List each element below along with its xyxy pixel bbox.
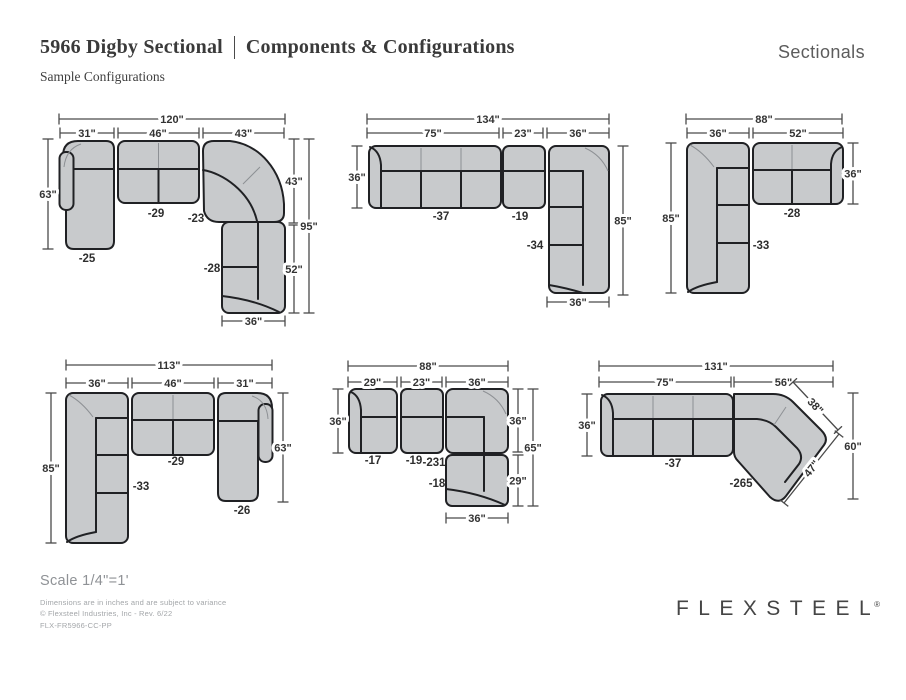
dim-label: 85" xyxy=(614,215,631,227)
piece--26 xyxy=(218,393,273,501)
piece--33 xyxy=(687,143,749,293)
piece-label: -29 xyxy=(168,456,185,468)
dim-label: 43" xyxy=(285,176,302,188)
piece-label: -29 xyxy=(148,208,165,220)
piece--28 xyxy=(222,222,285,313)
dim-label: 31" xyxy=(78,128,95,140)
copyright-note: © Flexsteel Industries, Inc - Rev. 6/22 xyxy=(40,608,226,619)
dim-label: 63" xyxy=(274,442,291,454)
dim-label: 36" xyxy=(578,420,595,432)
dim-label: 56" xyxy=(775,377,792,389)
piece-label: -34 xyxy=(527,240,544,252)
piece-label: -265 xyxy=(729,478,753,490)
registered-mark: ® xyxy=(874,600,880,609)
piece--37 xyxy=(601,394,733,456)
dim-label: 36" xyxy=(245,316,262,328)
piece-label: -28 xyxy=(204,263,221,275)
diagram-config-4: 113" 36" 46" 31" 85" 63" -33 -29 -26 xyxy=(42,360,291,543)
dim-label: 29" xyxy=(509,475,526,487)
dim-label: 36" xyxy=(88,378,105,390)
diagram-config-1: 120" 31" 46" 43" 63" 43" 52" 95" 36" -25… xyxy=(39,114,317,328)
dim-label: 85" xyxy=(662,213,679,225)
dim-label: 36" xyxy=(569,128,586,140)
piece--231 xyxy=(446,389,508,453)
dim-label: 85" xyxy=(42,463,59,475)
logo-text: FLEXSTEEL xyxy=(676,597,880,620)
piece-label: -18 xyxy=(429,478,446,490)
piece-label: -26 xyxy=(234,505,251,517)
document-code: FLX-FR5966-CC-PP xyxy=(40,620,226,631)
dim-label: 52" xyxy=(789,128,806,140)
diagram-config-5: 88" 29" 23" 36" 36" 36" 29" 65" 36" -17 … xyxy=(329,361,541,525)
dim-label: 65" xyxy=(524,442,541,454)
dim-label: 75" xyxy=(656,377,673,389)
piece-label: -25 xyxy=(79,253,96,265)
piece-label: -37 xyxy=(433,211,450,223)
piece--23 xyxy=(203,141,284,222)
dim-label: 63" xyxy=(39,189,56,201)
spec-sheet-page: 5966 Digby Sectional Components & Config… xyxy=(0,0,906,700)
variance-note: Dimensions are in inches and are subject… xyxy=(40,597,226,608)
piece--34 xyxy=(549,146,609,293)
dim-label: 43" xyxy=(235,128,252,140)
fine-print: Dimensions are in inches and are subject… xyxy=(40,597,226,631)
dim-label: 46" xyxy=(164,378,181,390)
dim-label: 36" xyxy=(468,513,485,525)
dim-label: 23" xyxy=(514,128,531,140)
piece--17 xyxy=(349,389,397,453)
dim-label: 31" xyxy=(236,378,253,390)
dim-label: 36" xyxy=(844,168,861,180)
piece--18 xyxy=(446,455,508,506)
dim-label: 36" xyxy=(569,297,586,309)
dim-label: 36" xyxy=(329,416,346,428)
dim-label: 36" xyxy=(468,377,485,389)
piece--33 xyxy=(66,393,128,543)
scale-note: Scale 1/4"=1' xyxy=(40,573,129,589)
dim-label: 36" xyxy=(709,128,726,140)
piece-label: -17 xyxy=(365,455,382,467)
dim-label: 46" xyxy=(149,128,166,140)
dim-label: 88" xyxy=(755,114,772,126)
piece-label: -33 xyxy=(753,240,770,252)
piece--29 xyxy=(132,393,214,455)
dim-label: 113" xyxy=(158,360,181,372)
diagram-config-2: 134" 75" 23" 36" 36" 85" 36" -37 -19 -34 xyxy=(348,114,631,309)
dim-label: 131" xyxy=(704,361,728,373)
piece-label: -231 xyxy=(422,457,446,469)
dim-label: 29" xyxy=(364,377,381,389)
dim-label: 95" xyxy=(300,221,317,233)
piece--37 xyxy=(369,146,501,208)
dim-label: 36" xyxy=(348,172,365,184)
piece--29 xyxy=(118,141,199,203)
piece-label: -33 xyxy=(133,481,150,493)
piece-label: -23 xyxy=(188,213,205,225)
piece--25 xyxy=(60,141,115,249)
dim-label: 75" xyxy=(424,128,441,140)
dim-label: 52" xyxy=(285,264,302,276)
piece-label: -28 xyxy=(784,208,801,220)
diagram-config-3: 88" 36" 52" 85" 36" -28 -33 xyxy=(662,114,861,293)
piece-label: -37 xyxy=(665,458,682,470)
dim-label: 36" xyxy=(509,415,526,427)
dim-label: 120" xyxy=(160,114,184,126)
dim-label: 60" xyxy=(844,441,861,453)
piece--19 xyxy=(503,146,545,208)
dim-label: 88" xyxy=(419,361,436,373)
piece--19 xyxy=(401,389,443,453)
diagrams-canvas: 120" 31" 46" 43" 63" 43" 52" 95" 36" -25… xyxy=(0,0,906,700)
piece--28 xyxy=(753,143,843,204)
diagram-config-6: 131" 75" 56" 36" 60" 38" 47" -37 -265 xyxy=(578,361,861,503)
dim-label: 23" xyxy=(413,377,430,389)
flexsteel-logo: FLEXSTEEL® xyxy=(676,597,880,621)
piece-label: -19 xyxy=(406,455,423,467)
piece-label: -19 xyxy=(512,211,529,223)
dim-label: 134" xyxy=(476,114,500,126)
